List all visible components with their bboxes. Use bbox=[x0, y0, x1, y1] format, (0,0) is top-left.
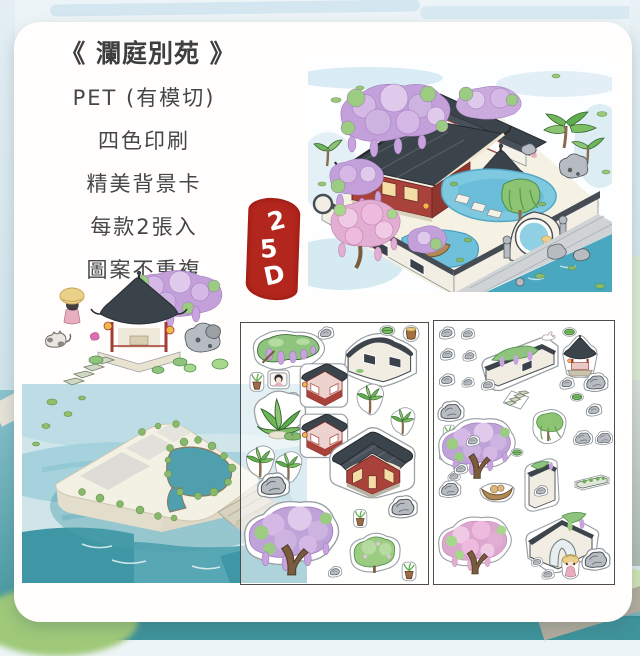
sticker-rock bbox=[440, 349, 454, 360]
sticker-rock bbox=[389, 496, 418, 518]
sticker-rock bbox=[463, 351, 476, 362]
sticker-shop-front bbox=[300, 364, 347, 407]
sticker-stone-steps bbox=[503, 391, 528, 409]
sticker-sheet-2 bbox=[433, 320, 615, 585]
feature-item: PET (有模切) bbox=[18, 82, 270, 112]
feature-list: PET (有模切) 四色印刷 精美背景卡 每款2張入 圖案不重複 bbox=[18, 82, 270, 284]
sticker-rabbit bbox=[542, 332, 555, 340]
pavilion-vignette-illustration bbox=[38, 268, 250, 392]
vignette-girl bbox=[60, 288, 84, 324]
seal-char: D bbox=[261, 261, 287, 291]
sticker-small-pavilion bbox=[563, 335, 597, 378]
sticker-rock bbox=[542, 569, 554, 579]
product-card: 《 瀾庭別苑 》 PET (有模切) 四色印刷 精美背景卡 每款2張入 圖案不重… bbox=[14, 22, 632, 622]
sticker-tall-rock bbox=[595, 431, 612, 445]
feature-item: 精美背景卡 bbox=[18, 168, 270, 198]
sticker-potted-plant bbox=[250, 373, 264, 392]
vignette-rocks bbox=[185, 323, 220, 352]
sticker-rock bbox=[439, 374, 454, 386]
sticker-rock bbox=[462, 377, 474, 387]
sticker-potted-plant bbox=[402, 562, 416, 581]
seal-2-5d-stamp: 2 5 D bbox=[245, 197, 301, 301]
watercolor-left-sky bbox=[0, 0, 15, 400]
sticker-rock bbox=[318, 327, 334, 339]
sticker-green-tree bbox=[350, 533, 400, 573]
sticker-rock bbox=[560, 378, 574, 389]
sticker-palm-tree bbox=[391, 408, 415, 436]
vignette-cat bbox=[46, 330, 71, 347]
sticker-willow-tree bbox=[533, 409, 566, 443]
sticker-leaf bbox=[511, 449, 523, 457]
sticker-cloud-wall bbox=[344, 333, 416, 386]
sticker-honey-pot bbox=[403, 326, 419, 342]
sticker-banana-plant bbox=[254, 391, 305, 439]
sticker-palms-and-rock bbox=[247, 446, 302, 498]
feature-item: 四色印刷 bbox=[18, 125, 270, 155]
sticker-wall-segment bbox=[525, 459, 559, 511]
sticker-palm-tree bbox=[357, 384, 383, 415]
product-title: 《 瀾庭別苑 》 bbox=[22, 34, 274, 70]
sticker-planter-box bbox=[575, 475, 609, 490]
sticker-boat bbox=[480, 483, 514, 502]
watercolor-stroke bbox=[420, 6, 635, 19]
seal-char: 2 bbox=[265, 206, 288, 236]
sticker-leaf bbox=[380, 326, 395, 336]
sticker-girl-in-window bbox=[268, 370, 289, 389]
sticker-rock bbox=[461, 329, 474, 340]
sticker-pink-wisteria-tree bbox=[439, 517, 512, 574]
sticker-girl bbox=[562, 555, 580, 580]
sticker-rock bbox=[439, 481, 461, 498]
sticker-potted-plant bbox=[354, 510, 367, 528]
vignette-flower bbox=[90, 332, 99, 340]
sticker-garden-wall bbox=[481, 338, 558, 391]
sticker-wisteria-tree bbox=[245, 502, 339, 575]
sticker-rock bbox=[586, 404, 601, 416]
sticker-rock bbox=[438, 401, 464, 421]
sticker-leaf bbox=[571, 393, 584, 401]
sticker-rock bbox=[439, 327, 454, 339]
watercolor-left-water bbox=[0, 390, 15, 640]
garden-scene-illustration bbox=[308, 62, 612, 292]
sticker-leaf bbox=[563, 328, 576, 337]
watercolor-stroke bbox=[50, 0, 420, 17]
sticker-sheet-1 bbox=[240, 322, 429, 585]
sticker-lilypad bbox=[285, 433, 301, 440]
feature-item: 每款2張入 bbox=[18, 211, 270, 241]
sticker-rock bbox=[328, 566, 342, 577]
sticker-tall-rock bbox=[573, 430, 592, 445]
